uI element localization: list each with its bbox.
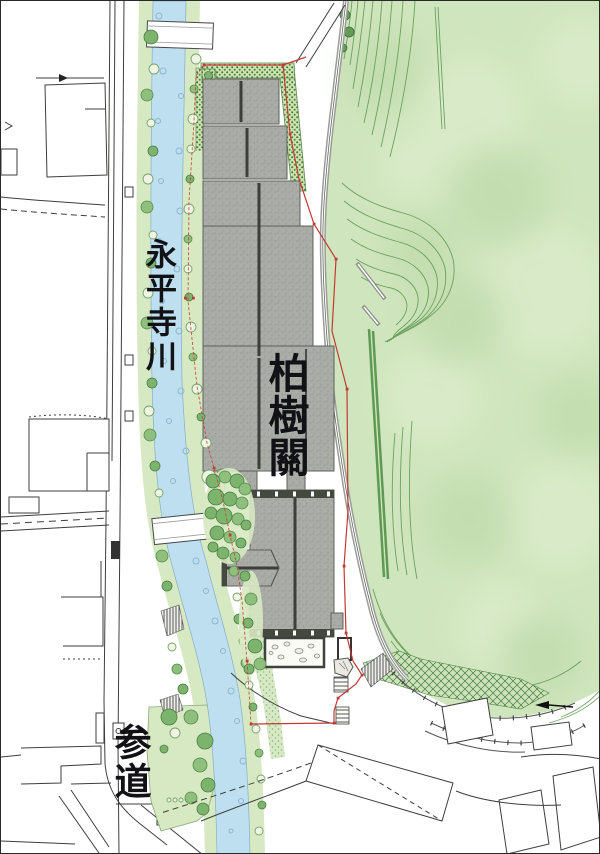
roof-edge-band (250, 490, 334, 498)
river-label: 永平寺川 (142, 238, 173, 374)
hall-block-3 (203, 181, 300, 226)
site-plan: 永平寺川 柏樹關 参道 (0, 0, 600, 854)
steps (334, 677, 348, 692)
garden-frame-box (338, 638, 351, 660)
approach-road-label: 参道 (111, 723, 148, 801)
utility-box (111, 541, 120, 559)
main-building-label: 柏樹關 (264, 352, 305, 478)
courtyard-garden (265, 638, 324, 667)
hall-block-2 (203, 126, 287, 179)
steps (336, 707, 349, 724)
annex-hut (331, 613, 343, 629)
